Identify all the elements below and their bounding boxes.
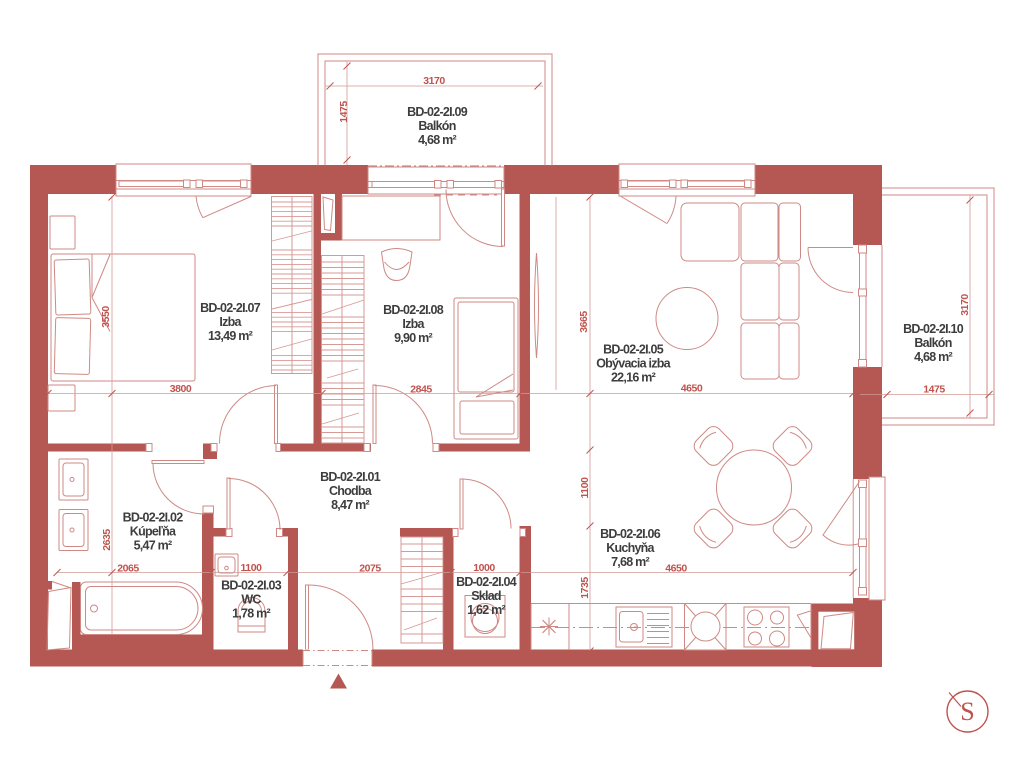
svg-text:Balkón: Balkón [914, 336, 951, 350]
svg-text:1475: 1475 [923, 384, 945, 396]
svg-text:BD-02-2I.02: BD-02-2I.02 [123, 511, 184, 525]
svg-text:BD-02-2I.06: BD-02-2I.06 [600, 527, 661, 541]
svg-text:1100: 1100 [241, 562, 263, 574]
svg-text:1475: 1475 [338, 101, 350, 123]
svg-text:BD-02-2I.10: BD-02-2I.10 [903, 322, 964, 336]
svg-text:3665: 3665 [578, 311, 590, 333]
svg-text:S: S [960, 697, 974, 726]
svg-text:Balkón: Balkón [418, 119, 455, 133]
svg-text:5,47 m²: 5,47 m² [134, 539, 172, 553]
svg-text:BD-02-2I.01: BD-02-2I.01 [320, 470, 381, 484]
svg-text:4,68 m²: 4,68 m² [418, 133, 456, 147]
svg-text:BD-02-2I.07: BD-02-2I.07 [200, 301, 261, 315]
svg-text:1000: 1000 [473, 562, 495, 574]
svg-text:22,16 m²: 22,16 m² [611, 371, 656, 385]
svg-text:BD-02-2I.09: BD-02-2I.09 [407, 105, 468, 119]
svg-text:Sklad: Sklad [471, 589, 501, 603]
svg-text:2635: 2635 [101, 529, 113, 551]
svg-text:Obývacia izba: Obývacia izba [596, 357, 671, 371]
svg-text:Chodba: Chodba [329, 484, 373, 498]
svg-text:WC: WC [241, 593, 261, 607]
svg-text:3170: 3170 [423, 75, 445, 87]
svg-text:Kuchyňa: Kuchyňa [606, 541, 655, 555]
svg-text:1735: 1735 [579, 577, 591, 599]
svg-text:4,68 m²: 4,68 m² [914, 350, 952, 364]
svg-text:4650: 4650 [665, 563, 687, 575]
svg-text:13,49 m²: 13,49 m² [208, 329, 253, 343]
svg-text:7,68 m²: 7,68 m² [611, 555, 649, 569]
svg-text:1,78 m²: 1,78 m² [232, 607, 270, 621]
svg-text:2845: 2845 [410, 384, 432, 396]
svg-text:9,90 m²: 9,90 m² [394, 331, 432, 345]
svg-text:4650: 4650 [681, 383, 703, 395]
svg-text:3170: 3170 [959, 294, 971, 316]
svg-text:8,47 m²: 8,47 m² [331, 498, 369, 512]
svg-text:2065: 2065 [117, 563, 139, 575]
svg-text:Kúpeľňa: Kúpeľňa [130, 525, 177, 539]
svg-text:Izba: Izba [402, 317, 425, 331]
svg-text:1,62 m²: 1,62 m² [467, 603, 505, 617]
svg-text:BD-02-2I.04: BD-02-2I.04 [456, 575, 517, 589]
svg-text:1100: 1100 [579, 477, 591, 499]
svg-text:3550: 3550 [100, 306, 112, 328]
svg-text:2075: 2075 [359, 563, 381, 575]
svg-text:BD-02-2I.08: BD-02-2I.08 [383, 303, 444, 317]
svg-text:BD-02-2I.03: BD-02-2I.03 [221, 579, 282, 593]
svg-text:BD-02-2I.05: BD-02-2I.05 [603, 343, 664, 357]
svg-text:Izba: Izba [219, 315, 242, 329]
svg-text:3800: 3800 [170, 383, 192, 395]
